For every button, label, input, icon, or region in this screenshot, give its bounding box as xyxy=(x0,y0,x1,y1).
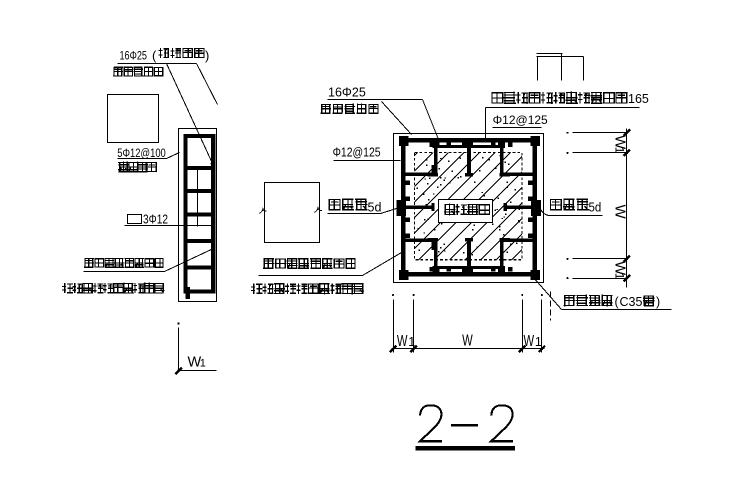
svg-text:16Φ25: 16Φ25 xyxy=(120,51,148,63)
svg-text:1: 1 xyxy=(408,335,415,349)
svg-text:): ) xyxy=(205,48,209,63)
svg-text:): ) xyxy=(656,295,660,309)
svg-text:W: W xyxy=(462,332,473,349)
svg-text:W: W xyxy=(612,205,629,220)
svg-text:5d: 5d xyxy=(589,200,602,215)
svg-text:16Φ25: 16Φ25 xyxy=(328,86,366,100)
svg-text:C35: C35 xyxy=(620,295,643,309)
svg-text:W: W xyxy=(397,333,408,350)
svg-text:W: W xyxy=(524,333,535,350)
svg-text:Φ12@125: Φ12@125 xyxy=(493,113,548,127)
svg-text:(: ( xyxy=(152,48,157,63)
svg-text:Φ12@125: Φ12@125 xyxy=(333,144,381,159)
svg-text:1: 1 xyxy=(613,147,627,154)
svg-text:5d: 5d xyxy=(368,201,382,215)
svg-text:1: 1 xyxy=(535,335,542,349)
svg-text:3Φ12: 3Φ12 xyxy=(143,213,168,227)
svg-text:1: 1 xyxy=(200,357,206,369)
svg-text:1: 1 xyxy=(613,273,627,280)
svg-text:165: 165 xyxy=(628,92,649,106)
